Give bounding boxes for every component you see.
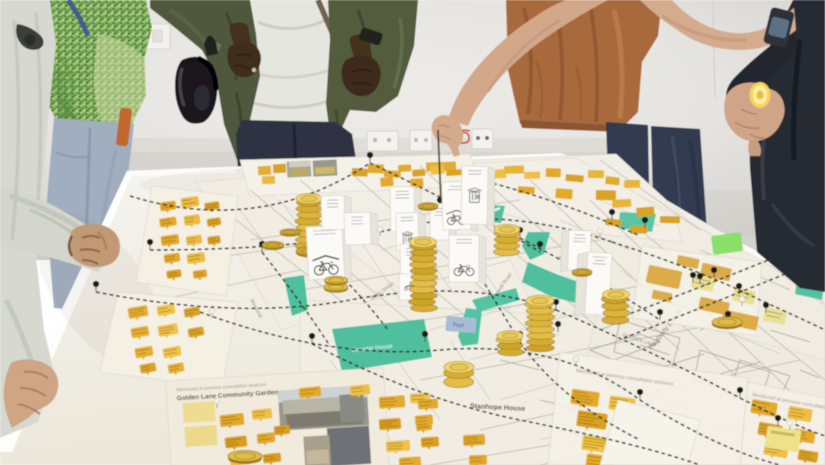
svg-text:Pool: Pool xyxy=(453,322,464,329)
